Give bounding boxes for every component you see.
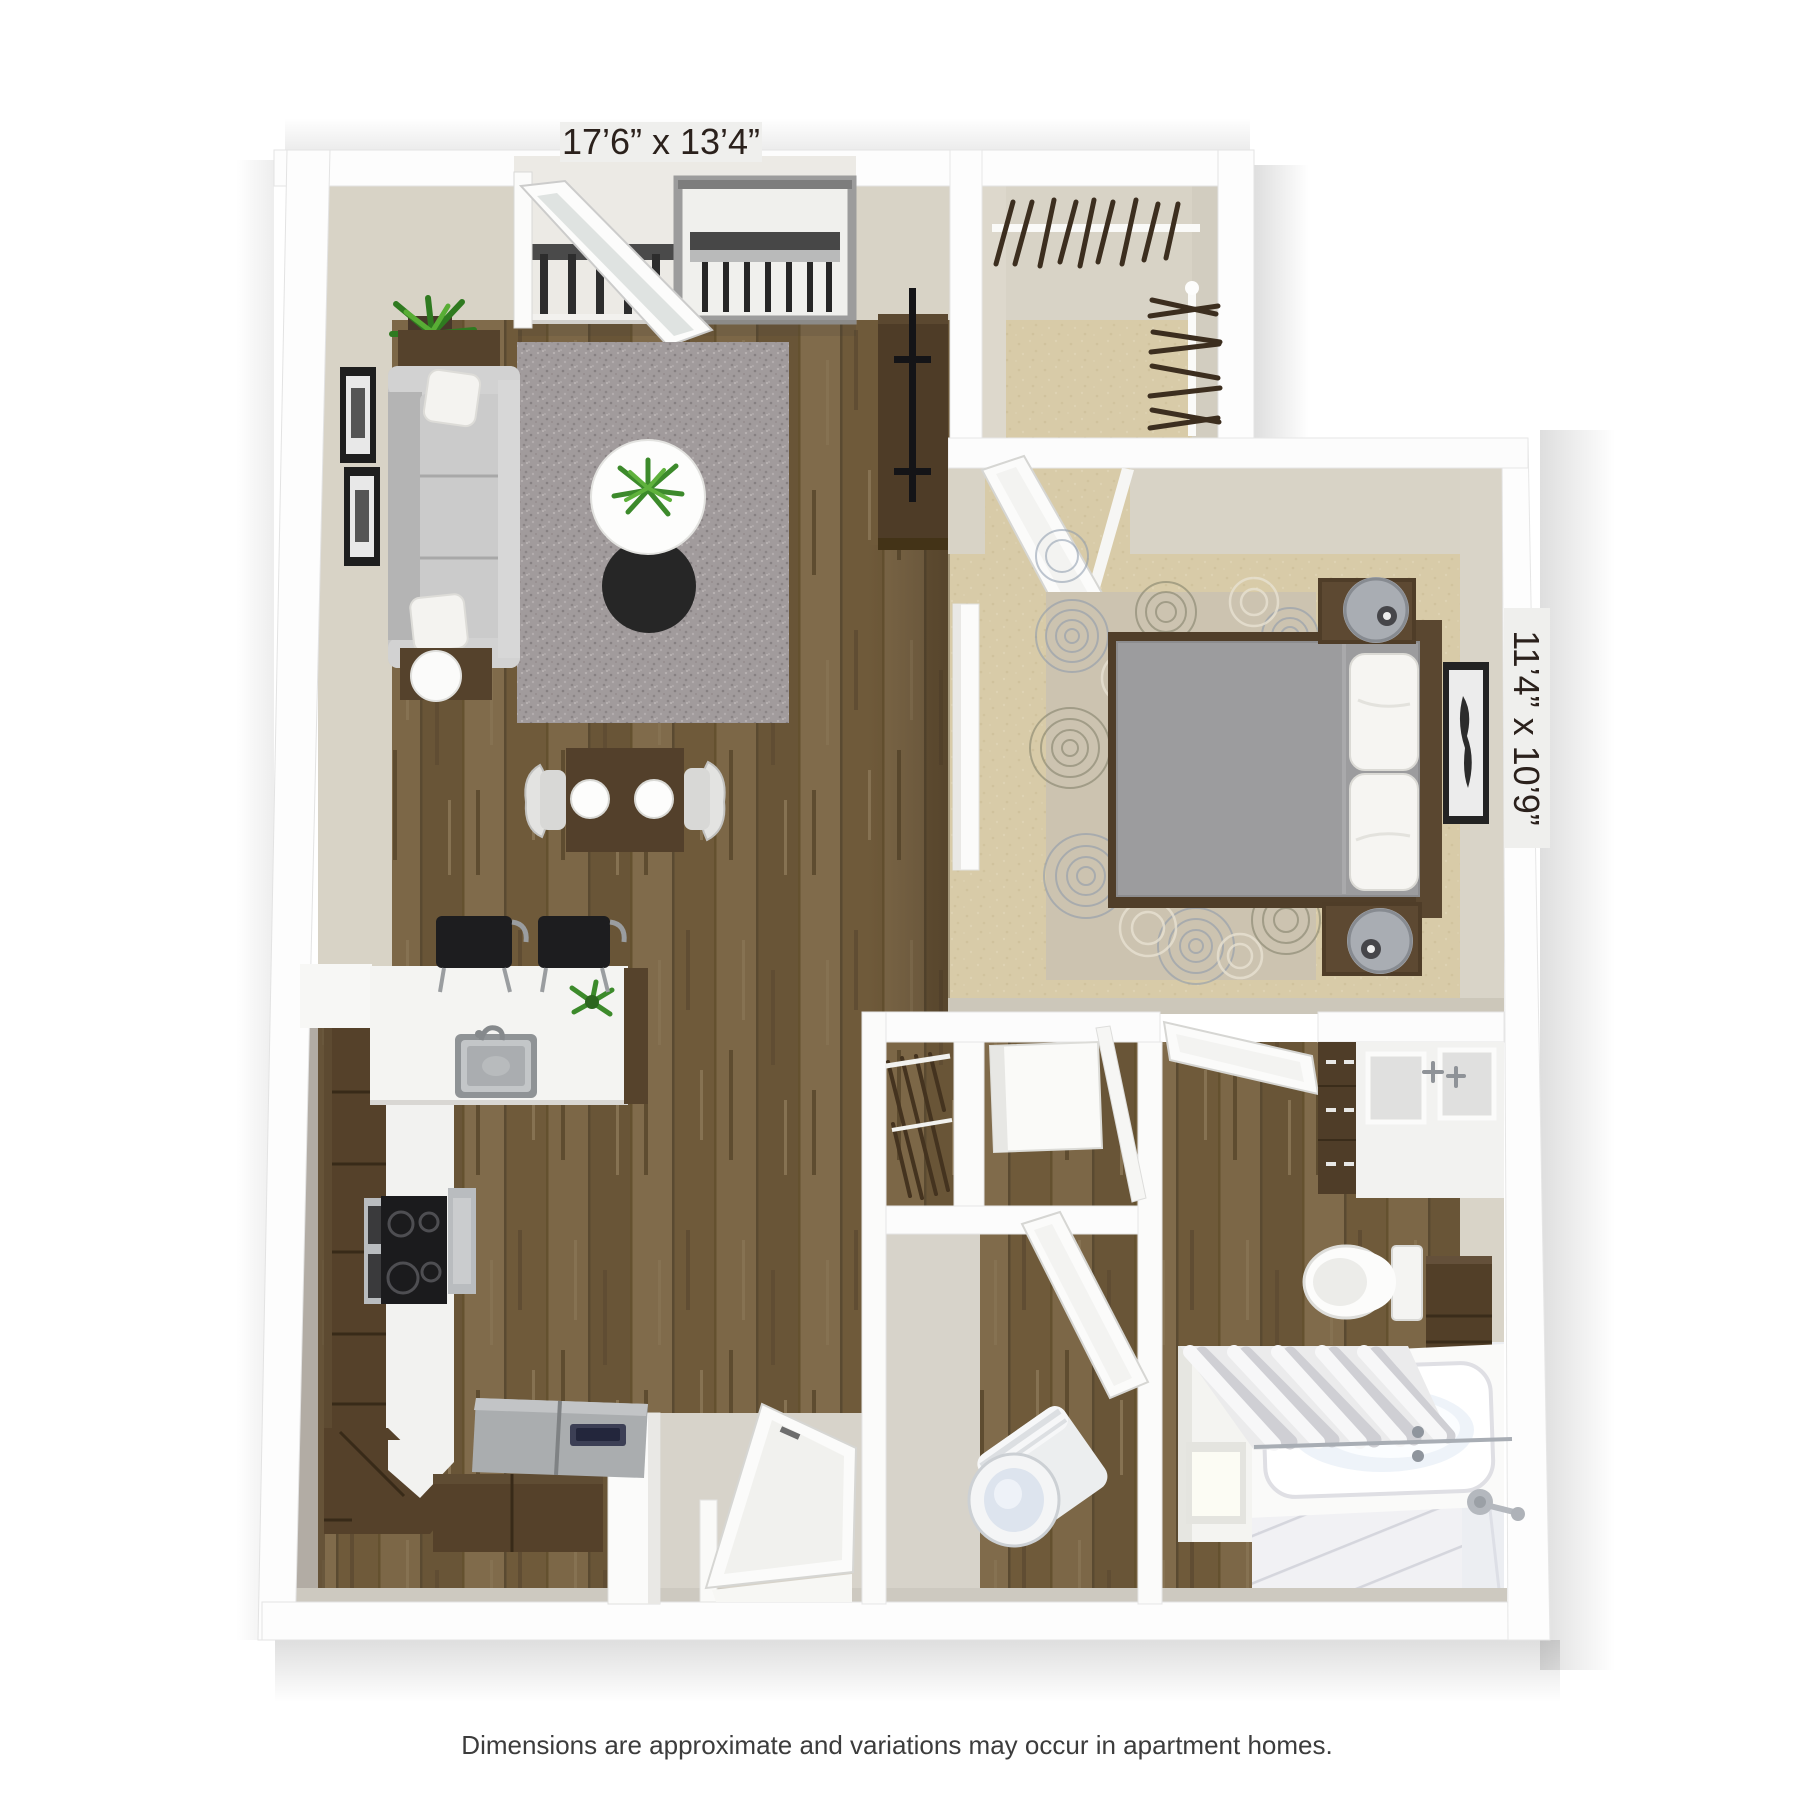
svg-text:17’6” x 13’4”: 17’6” x 13’4” [562,121,760,162]
svg-text:11’4” x 10’9”: 11’4” x 10’9” [1506,630,1547,825]
svg-text:Dimensions are approximate and: Dimensions are approximate and variation… [461,1730,1332,1760]
